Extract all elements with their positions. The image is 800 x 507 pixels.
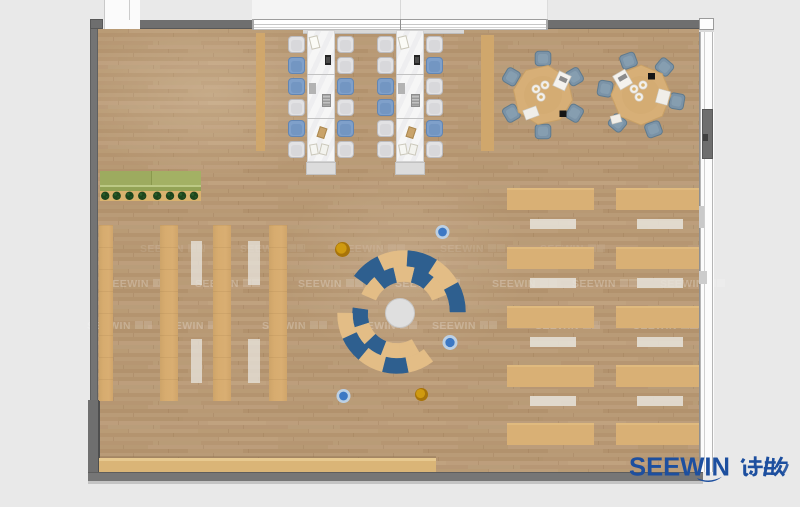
svg-text:SEEWIN: SEEWIN — [629, 452, 730, 482]
